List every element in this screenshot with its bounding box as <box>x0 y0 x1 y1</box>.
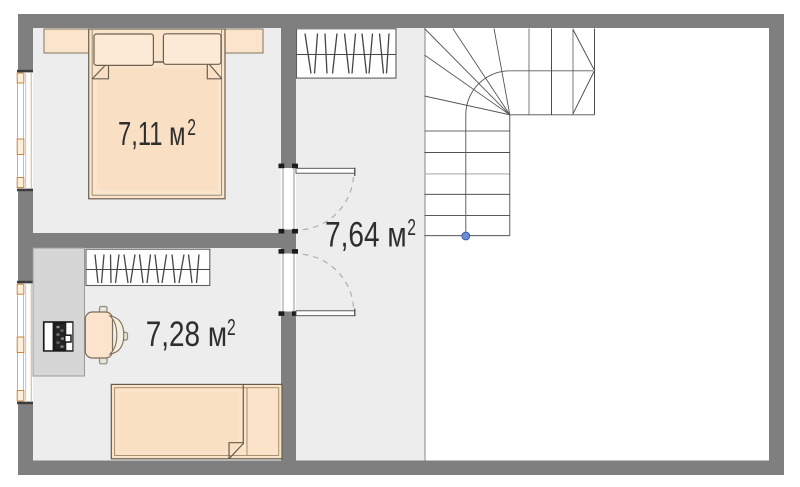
svg-text:7,28 м: 7,28 м <box>146 314 227 354</box>
svg-text:2: 2 <box>187 115 196 141</box>
svg-text:2: 2 <box>407 215 416 241</box>
svg-text:2: 2 <box>227 315 236 341</box>
svg-text:7,64 м: 7,64 м <box>325 214 407 254</box>
svg-text:7,11 м: 7,11 м <box>118 116 185 153</box>
